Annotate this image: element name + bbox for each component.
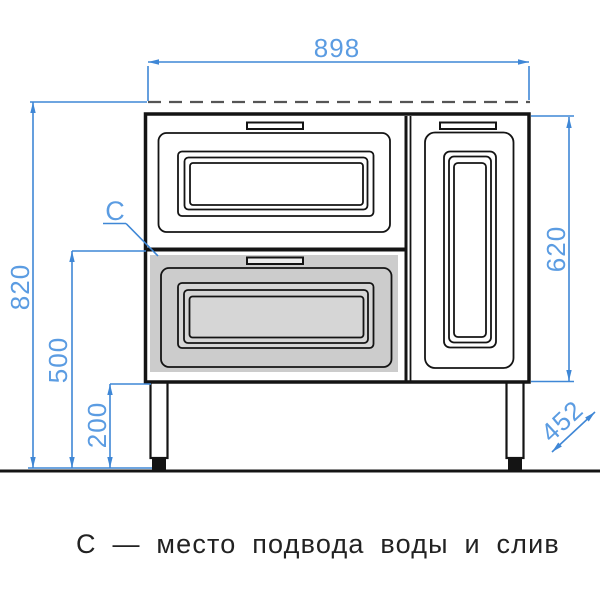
technical-drawing-page: 898 820 500 200 620 452 С С — место подв… bbox=[0, 0, 600, 600]
dim-label-overall-height: 820 bbox=[5, 264, 35, 310]
top-drawer-handle bbox=[247, 123, 303, 130]
dim-label-depth: 452 bbox=[535, 394, 589, 448]
bottom-drawer-handle bbox=[247, 258, 303, 265]
drawing-caption: С — место подвода воды и слив bbox=[76, 529, 560, 559]
dim-height-200 bbox=[110, 384, 151, 468]
top-drawer-panel bbox=[190, 163, 363, 205]
bottom-drawer-panel bbox=[190, 297, 364, 338]
c-marker-label: С bbox=[105, 196, 125, 226]
left-leg-foot bbox=[152, 458, 166, 470]
door-panel bbox=[454, 163, 486, 337]
door-handle bbox=[440, 123, 496, 130]
right-leg bbox=[507, 382, 524, 470]
dim-label-cabinet-height: 620 bbox=[541, 226, 571, 272]
dim-label-leg-clearance: 200 bbox=[82, 402, 112, 448]
left-leg bbox=[151, 382, 168, 470]
dim-label-water-supply-height: 500 bbox=[43, 337, 73, 383]
vanity-cabinet-drawing: 898 820 500 200 620 452 С С — место подв… bbox=[0, 0, 600, 600]
dim-label-width: 898 bbox=[314, 33, 360, 63]
bottom-drawer-highlighted bbox=[150, 255, 398, 372]
right-leg-foot bbox=[508, 458, 522, 470]
dim-width-898 bbox=[148, 62, 529, 101]
